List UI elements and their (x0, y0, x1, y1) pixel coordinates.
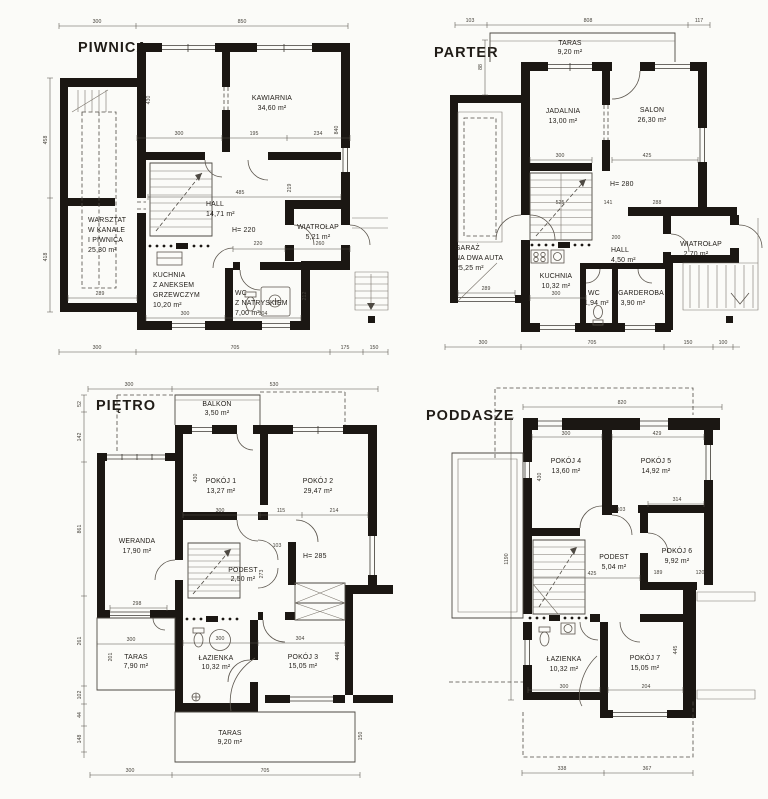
room-area: 14,71 m² (206, 211, 235, 218)
dim-label: 300 (562, 431, 571, 437)
dim-label: 141 (604, 200, 613, 206)
dim-label: 300 (479, 340, 488, 346)
stairs (530, 173, 592, 240)
room-label-pokoj2: POKÓJ 2 (303, 476, 334, 485)
dim-label: 150 (684, 340, 693, 346)
floor-title-parter: PARTER (434, 45, 499, 61)
dim-label: 430 (146, 96, 152, 105)
room-label-pokoj3: POKÓJ 3 (288, 652, 319, 661)
dim-label: 220 (254, 241, 263, 247)
legend-mark (726, 316, 733, 323)
dim-label: 212 (302, 292, 308, 301)
dim-label: 52 (77, 401, 83, 407)
dim-label: 808 (584, 18, 593, 24)
room-label-wiatrolap: WIATROŁAP (297, 224, 339, 231)
dim-label: 142 (77, 433, 83, 442)
room-area: 34,60 m² (258, 105, 287, 112)
room-label-weranda: WERANDA (119, 538, 156, 545)
room-label-wc: WC (235, 290, 247, 297)
room-area: 10,32 m² (550, 666, 579, 673)
dim-label: 338 (558, 766, 567, 772)
room-label-kawiarnia: KAWIARNIA (252, 95, 292, 102)
stairs (533, 540, 585, 614)
dim-label: 150 (358, 732, 364, 741)
dim-label: 201 (108, 653, 114, 662)
room-label-warsztat: WARSZTAT (88, 217, 127, 224)
room-area: 13,00 m² (549, 118, 578, 125)
dim-label: 300 (216, 508, 225, 514)
room-label-warsztat: I PIWNICA (88, 237, 123, 244)
dim-label: 418 (43, 253, 49, 262)
exterior-stairs (352, 218, 388, 310)
dim-label: 705 (588, 340, 597, 346)
stove-icon (531, 250, 548, 263)
room-area: 10,32 m² (202, 664, 231, 671)
legend-mark (368, 316, 375, 323)
room-area: 15,05 m² (631, 665, 660, 672)
dim-label: 300 (93, 345, 102, 351)
dim-label: 150 (370, 345, 379, 351)
dim-label: 861 (77, 525, 83, 534)
dim-label: 300 (125, 382, 134, 388)
room-area: 2,50 m² (231, 576, 256, 583)
room-label-garderoba: GARDEROBA (618, 290, 664, 297)
room-label-wc: Z NATRYSKIEM (235, 300, 288, 307)
dim-label: 204 (642, 684, 651, 690)
dimension-labels: 300 850 300 195 234 485 220 260 300 304 … (43, 19, 378, 351)
room-label-warsztat: W KANALE (88, 227, 125, 234)
dim-label: 530 (270, 382, 279, 388)
exterior-stairs (683, 218, 758, 310)
toilet-icon (594, 306, 603, 319)
dim-label: 300 (175, 131, 184, 137)
dim-label: 367 (643, 766, 652, 772)
dim-label: 314 (673, 497, 682, 503)
dim-label: 430 (537, 473, 543, 482)
lower-roof-terrace (452, 453, 523, 618)
floor-title-poddasze: PODDASZE (426, 408, 515, 424)
toilet-icon (539, 627, 550, 632)
dim-label: 840 (334, 126, 340, 135)
radiator-strip (531, 242, 591, 248)
room-area: 26,30 m² (638, 117, 667, 124)
dim-label: 458 (43, 136, 49, 145)
dim-label: 300 (556, 153, 565, 159)
dim-label: 260 (316, 241, 325, 247)
dim-label: 289 (482, 286, 491, 292)
height-note: H= 220 (232, 227, 256, 234)
dim-label: 300 (181, 311, 190, 317)
room-label-kuchnia: KUCHNIA (153, 272, 186, 279)
dim-label: 102 (77, 691, 83, 700)
garage-interior (458, 112, 502, 301)
room-area: 10,20 m² (153, 302, 182, 309)
dimension-lines (81, 386, 378, 778)
dim-label: 103 (617, 507, 626, 513)
room-area: 1,94 m² (584, 300, 609, 307)
dim-label: 219 (287, 184, 293, 193)
dim-label: 44 (77, 712, 83, 718)
room-area: 7,90 m² (124, 663, 149, 670)
dim-label: 120 (696, 570, 705, 576)
dim-label: 300 (93, 19, 102, 25)
room-area: 3,50 m² (205, 410, 230, 417)
room-label-balkon: BALKON (202, 401, 231, 408)
dim-label: 189 (654, 570, 663, 576)
room-label-wiatrolap: WIATROŁAP (680, 241, 722, 248)
room-label-taras: TARAS (218, 730, 242, 737)
dim-label: 175 (341, 345, 350, 351)
dim-label: 100 (719, 340, 728, 346)
dim-label: 115 (277, 508, 285, 514)
dim-label: 300 (127, 637, 136, 643)
dim-label: 214 (330, 508, 339, 514)
dim-label: 304 (259, 311, 268, 317)
room-label-pokoj1: POKÓJ 1 (206, 476, 237, 485)
dim-label: 289 (96, 291, 105, 297)
counter-icon (157, 252, 182, 265)
room-area: 3,90 m² (621, 300, 646, 307)
dim-label: 88 (478, 64, 484, 70)
room-label-taras: TARAS (558, 40, 582, 47)
dim-label: 820 (618, 400, 627, 406)
floor-plan-poddasze: PODDASZE (426, 388, 755, 776)
sink-icon (551, 250, 564, 263)
room-area: 29,47 m² (304, 488, 333, 495)
dim-label: 117 (695, 18, 703, 24)
height-note: H= 285 (303, 553, 327, 560)
room-area: 25,30 m² (88, 247, 117, 254)
room-area: 9,92 m² (665, 558, 690, 565)
room-area: 10,32 m² (542, 283, 571, 290)
room-area: 5,21 m² (306, 234, 331, 241)
dim-label: 525 (556, 200, 565, 206)
room-area: 4,50 m² (611, 257, 636, 264)
room-label-jadalnia: JADALNIA (546, 108, 581, 115)
room-label-hall: HALL (206, 201, 224, 208)
floor-title-pietro: PIĘTRO (96, 398, 156, 414)
dim-label: 300 (560, 684, 569, 690)
floor-plan-piwnica: PIWNICA (43, 19, 388, 355)
room-labels: BALKON 3,50 m² POKÓJ 1 13,27 m² POKÓJ 2 … (119, 401, 334, 746)
dim-label: 200 (612, 235, 621, 241)
room-area: 9,20 m² (218, 739, 243, 746)
dim-label: 298 (133, 601, 142, 607)
room-area: 25,25 m² (455, 265, 484, 272)
radiator-strip (149, 243, 210, 249)
room-label-pokoj5: POKÓJ 5 (641, 456, 672, 465)
room-label-kuchnia: KUCHNIA (540, 273, 573, 280)
room-label-salon: SALON (640, 107, 664, 114)
document-page: PIWNICA (0, 0, 768, 799)
terrace (490, 33, 675, 62)
room-area: 7,00 m² (235, 310, 260, 317)
room-area: 13,27 m² (207, 488, 236, 495)
walls (60, 43, 350, 330)
dim-label: 425 (643, 153, 652, 159)
room-area: 13,60 m² (552, 468, 581, 475)
dim-label: 446 (335, 652, 341, 661)
dim-label: 705 (261, 768, 270, 774)
dim-label: 304 (296, 636, 305, 642)
side-eaves (697, 592, 755, 699)
room-area: 2,70 m² (684, 251, 709, 258)
dashed-openings (82, 87, 228, 288)
room-label-pokoj4: POKÓJ 4 (551, 456, 582, 465)
room-label-podest: PODEST (228, 567, 258, 574)
dim-label: 300 (552, 291, 561, 297)
dim-label: 430 (193, 474, 199, 483)
room-area: 9,20 m² (558, 49, 583, 56)
dim-label: 425 (588, 571, 597, 577)
room-labels: POKÓJ 4 13,60 m² POKÓJ 5 14,92 m² PODEST… (547, 456, 693, 673)
room-area: 17,90 m² (123, 548, 152, 555)
room-label-garaz: GARAŻ (455, 243, 480, 252)
dim-label: 103 (466, 18, 475, 24)
dim-label: 261 (77, 637, 83, 646)
dim-label: 850 (238, 19, 247, 25)
dimension-labels: 300 530 300 115 214 103 298 300 300 304 … (77, 382, 364, 774)
dim-label: 429 (653, 431, 662, 437)
room-label-hall: HALL (611, 247, 629, 254)
floor-plan-parter: PARTER (434, 18, 762, 350)
floor-plans-sheet: PIWNICA (0, 0, 768, 799)
dim-label: 485 (236, 190, 245, 196)
height-note: H= 280 (610, 181, 634, 188)
radiator-strip (179, 616, 239, 622)
room-label-lazienka: ŁAZIENKA (199, 655, 234, 662)
dim-label: 300 (126, 768, 135, 774)
room-label-wc: WC (588, 290, 600, 297)
dim-label: 300 (216, 636, 225, 642)
dim-label: 705 (231, 345, 240, 351)
radiator-strip (529, 615, 588, 621)
dim-label: 234 (314, 131, 323, 137)
wardrobes (295, 583, 345, 620)
room-label-taras: TARAS (124, 654, 148, 661)
room-label-garaz: NA DWA AUTA (455, 255, 503, 262)
dim-label: 273 (259, 570, 265, 579)
dim-label: 195 (250, 131, 259, 137)
dim-label: 288 (653, 200, 662, 206)
room-label-kuchnia: Z ANEKSEM (153, 282, 194, 289)
room-label-pokoj7: POKÓJ 7 (630, 653, 661, 662)
room-label-lazienka: ŁAZIENKA (547, 656, 582, 663)
dim-label: 1190 (504, 553, 510, 564)
room-area: 5,04 m² (602, 564, 627, 571)
room-label-pokoj6: POKÓJ 6 (662, 546, 693, 555)
dim-label: 148 (77, 735, 83, 744)
room-area: 14,92 m² (642, 468, 671, 475)
room-label-podest: PODEST (599, 554, 629, 561)
dim-label: 445 (673, 646, 679, 655)
room-area: 15,05 m² (289, 663, 318, 670)
toilet-icon (193, 628, 204, 633)
dim-label: 103 (273, 543, 282, 549)
floor-plan-pietro: PIĘTRO (77, 382, 393, 778)
room-label-kuchnia: GRZEWCZYM (153, 292, 200, 299)
